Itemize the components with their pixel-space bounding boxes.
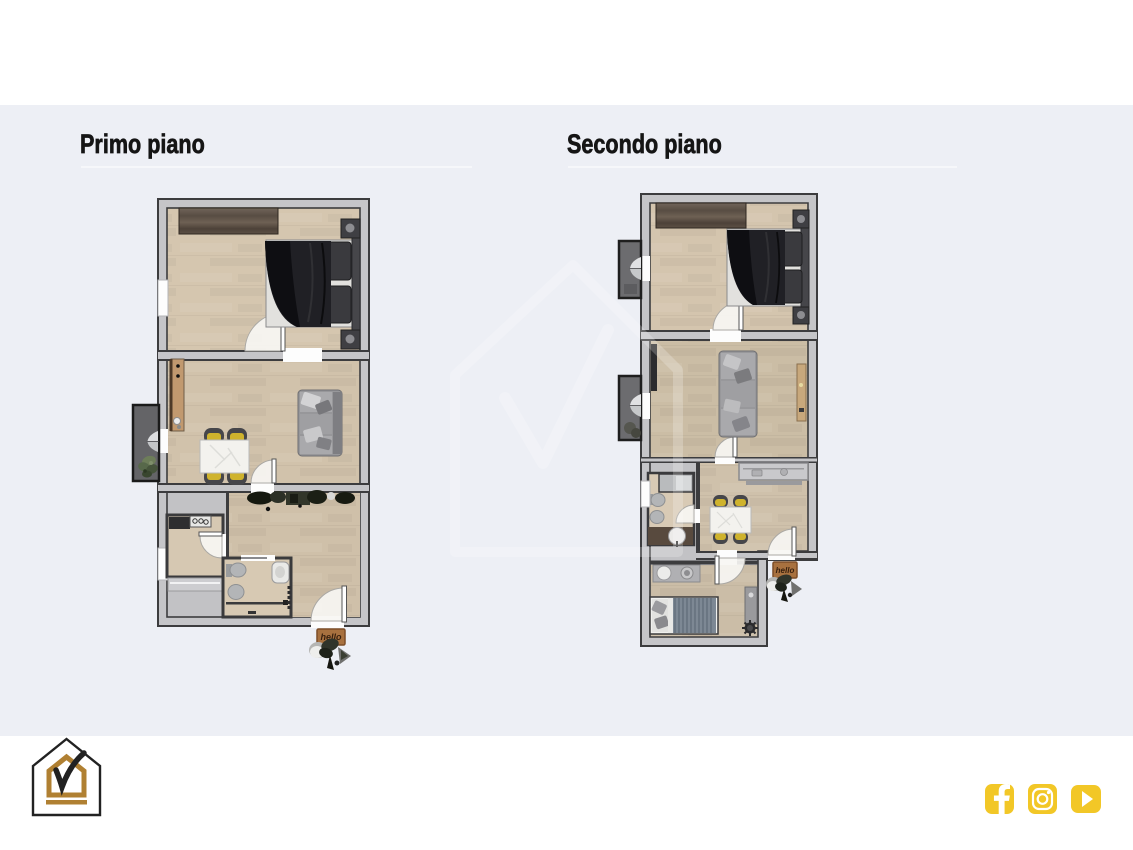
svg-text:hello: hello [776, 566, 795, 575]
